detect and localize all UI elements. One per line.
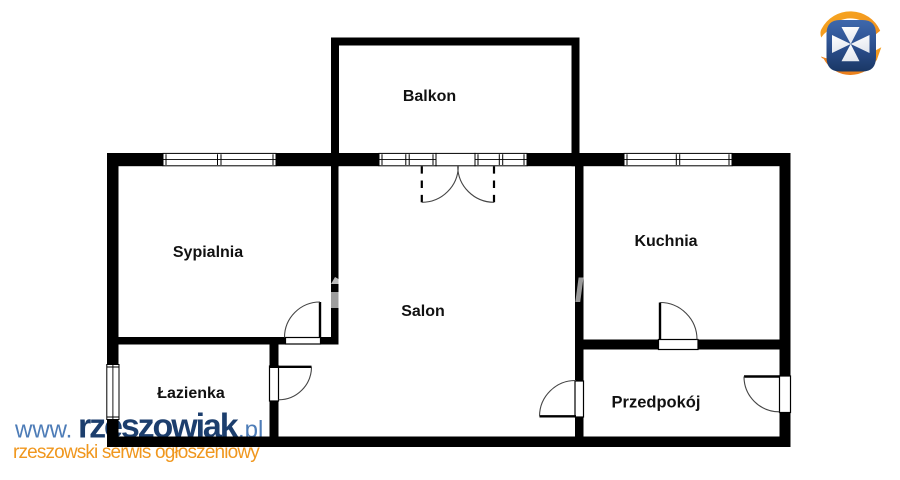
svg-text:.pl: .pl — [238, 417, 263, 444]
svg-text:Sypialnia: Sypialnia — [173, 244, 243, 261]
svg-text:rzeszowiak: rzeszowiak — [78, 408, 239, 446]
svg-text:rzeszowski serwis ogłoszeniowy: rzeszowski serwis ogłoszeniowy — [13, 442, 260, 463]
svg-text:Balkon: Balkon — [403, 88, 456, 105]
svg-text:Przedpokój: Przedpokój — [612, 394, 701, 412]
svg-text:Łazienka: Łazienka — [157, 385, 225, 402]
svg-text:Kuchnia: Kuchnia — [634, 233, 697, 250]
svg-text:www.: www. — [14, 417, 72, 444]
svg-text:Salon: Salon — [401, 303, 445, 320]
